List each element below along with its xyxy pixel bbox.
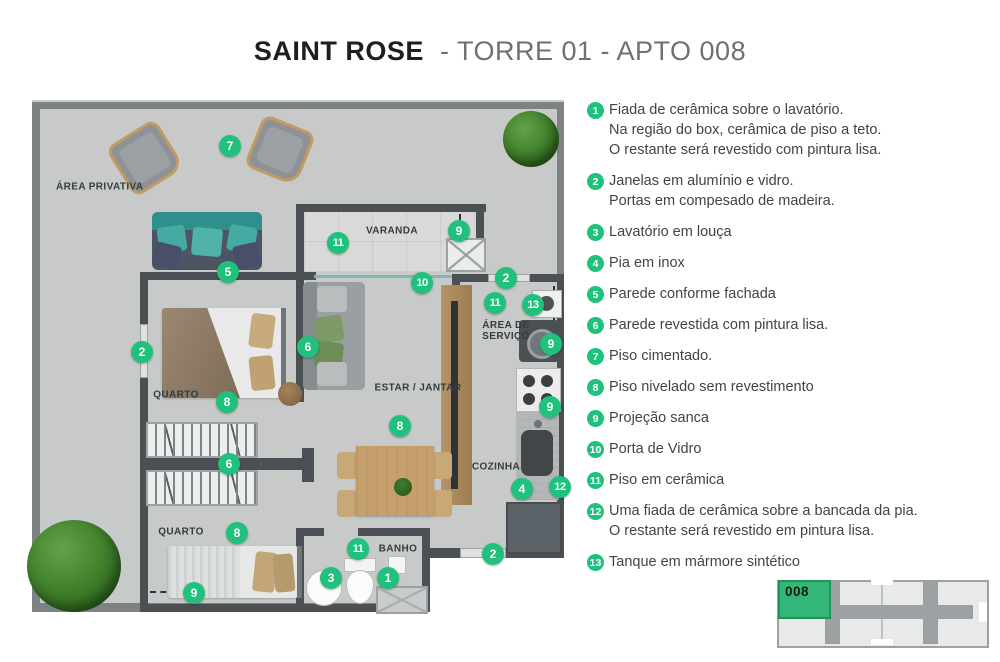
- room-label: ÁREA DE SERVIÇO: [482, 320, 530, 342]
- page-title: SAINT ROSE - TORRE 01 - APTO 008: [0, 36, 1000, 67]
- legend-item-13: 13Tanque em mármore sintético: [587, 552, 992, 572]
- legend-text: Parede revestida com pintura lisa.: [609, 315, 828, 335]
- wardrobe: [146, 422, 258, 458]
- legend-number-badge: 11: [587, 472, 604, 489]
- legend-text: Porta de Vidro: [609, 439, 701, 459]
- wall: [296, 204, 486, 212]
- tree: [503, 111, 559, 167]
- table-plant: [394, 478, 412, 496]
- plan-marker-9: 9: [183, 582, 205, 604]
- legend-text: Piso cimentado.: [609, 346, 712, 366]
- legend-text: Pia em inox: [609, 253, 685, 273]
- legend-item-12: 12Uma fiada de cerâmica sobre a bancada …: [587, 501, 992, 541]
- legend-item-11: 11Piso em cerâmica: [587, 470, 992, 490]
- plan-marker-3: 3: [320, 567, 342, 589]
- legend-item-7: 7Piso cimentado.: [587, 346, 992, 366]
- plan-marker-11: 11: [347, 538, 369, 560]
- double-bed: [162, 308, 282, 398]
- plan-marker-8: 8: [226, 522, 248, 544]
- room-label: ÁREA PRIVATIVA: [56, 182, 143, 193]
- legend-text: Janelas em alumínio e vidro. Portas em c…: [609, 171, 835, 211]
- wall: [302, 448, 314, 482]
- legend: 1Fiada de cerâmica sobre o lavatório. Na…: [587, 100, 992, 583]
- kitchen-sink: [521, 430, 553, 476]
- tree: [27, 520, 121, 612]
- varanda-crate: [446, 238, 486, 272]
- plan-marker-8: 8: [216, 391, 238, 413]
- wicker-chair: [244, 114, 317, 187]
- plan-marker-2: 2: [495, 267, 517, 289]
- wall: [296, 204, 304, 272]
- legend-number-badge: 1: [587, 102, 604, 119]
- wall: [296, 528, 324, 536]
- plan-marker-6: 6: [297, 336, 319, 358]
- legend-number-badge: 7: [587, 348, 604, 365]
- unit-label: 008: [785, 584, 809, 599]
- shower-floor: [376, 586, 428, 614]
- legend-number-badge: 13: [587, 554, 604, 571]
- legend-text: Tanque em mármore sintético: [609, 552, 800, 572]
- plan-marker-8: 8: [389, 415, 411, 437]
- legend-number-badge: 4: [587, 255, 604, 272]
- room-label: QUARTO: [153, 390, 199, 401]
- plan-marker-9: 9: [448, 220, 470, 242]
- legend-item-3: 3Lavatório em louça: [587, 222, 992, 242]
- legend-number-badge: 2: [587, 173, 604, 190]
- legend-item-9: 9Projeção sanca: [587, 408, 992, 428]
- plan-marker-11: 11: [327, 232, 349, 254]
- plan-marker-12: 12: [549, 476, 571, 498]
- dining-chair: [432, 452, 452, 479]
- plan-marker-4: 4: [511, 478, 533, 500]
- legend-number-badge: 3: [587, 224, 604, 241]
- legend-item-2: 2Janelas em alumínio e vidro. Portas em …: [587, 171, 992, 211]
- key-plan: 008: [777, 578, 993, 652]
- plan-marker-5: 5: [217, 261, 239, 283]
- dining-chair: [432, 490, 452, 517]
- footprint-notch: [871, 639, 893, 645]
- dining-chair: [337, 490, 357, 517]
- legend-item-10: 10Porta de Vidro: [587, 439, 992, 459]
- plan-marker-6: 6: [218, 453, 240, 475]
- plan-marker-9: 9: [540, 333, 562, 355]
- unit-divider: [881, 582, 883, 605]
- outdoor-sofa: [152, 212, 262, 270]
- room-label: VARANDA: [366, 226, 418, 237]
- corridor-vertical: [923, 581, 938, 644]
- legend-item-8: 8Piso nivelado sem revestimento: [587, 377, 992, 397]
- toilet-bowl: [346, 570, 374, 604]
- dining-chair: [337, 452, 357, 479]
- legend-item-1: 1Fiada de cerâmica sobre o lavatório. Na…: [587, 100, 992, 160]
- plan-marker-7: 7: [219, 135, 241, 157]
- floor-plan: ÁREA PRIVATIVAVARANDAQUARTOESTAR / JANTA…: [32, 100, 564, 612]
- room-label: ESTAR / JANTAR: [375, 383, 462, 394]
- legend-text: Parede conforme fachada: [609, 284, 776, 304]
- plan-marker-2: 2: [482, 543, 504, 565]
- legend-item-6: 6Parede revestida com pintura lisa.: [587, 315, 992, 335]
- legend-number-badge: 6: [587, 317, 604, 334]
- plan-marker-2: 2: [131, 341, 153, 363]
- wardrobe: [146, 470, 258, 506]
- project-name: SAINT ROSE: [254, 36, 424, 66]
- side-table: [278, 382, 302, 406]
- legend-text: Lavatório em louça: [609, 222, 732, 242]
- legend-text: Piso nivelado sem revestimento: [609, 377, 814, 397]
- legend-item-5: 5Parede conforme fachada: [587, 284, 992, 304]
- highlighted-unit-008: 008: [778, 580, 831, 619]
- plan-cutout: [430, 558, 564, 612]
- legend-list: 1Fiada de cerâmica sobre o lavatório. Na…: [587, 100, 992, 572]
- room-label: BANHO: [379, 544, 418, 555]
- footprint-notch: [871, 580, 893, 585]
- legend-number-badge: 12: [587, 503, 604, 520]
- fridge: [506, 502, 562, 554]
- footprint-notch: [979, 602, 987, 622]
- legend-number-badge: 5: [587, 286, 604, 303]
- plan-marker-9: 9: [539, 396, 561, 418]
- plan-marker-11: 11: [484, 292, 506, 314]
- outer-wall-top: [32, 102, 564, 109]
- room-label: QUARTO: [158, 527, 204, 538]
- room-label: COZINHA: [472, 462, 520, 473]
- legend-number-badge: 8: [587, 379, 604, 396]
- wall: [358, 528, 430, 536]
- legend-text: Projeção sanca: [609, 408, 709, 428]
- legend-number-badge: 10: [587, 441, 604, 458]
- plan-marker-1: 1: [377, 567, 399, 589]
- legend-item-4: 4Pia em inox: [587, 253, 992, 273]
- legend-text: Uma fiada de cerâmica sobre a bancada da…: [609, 501, 918, 541]
- plan-marker-10: 10: [411, 272, 433, 294]
- legend-text: Fiada de cerâmica sobre o lavatório. Na …: [609, 100, 881, 160]
- legend-text: Piso em cerâmica: [609, 470, 724, 490]
- legend-number-badge: 9: [587, 410, 604, 427]
- tower-apto-label: - TORRE 01 - APTO 008: [440, 36, 746, 66]
- plan-marker-13: 13: [522, 294, 544, 316]
